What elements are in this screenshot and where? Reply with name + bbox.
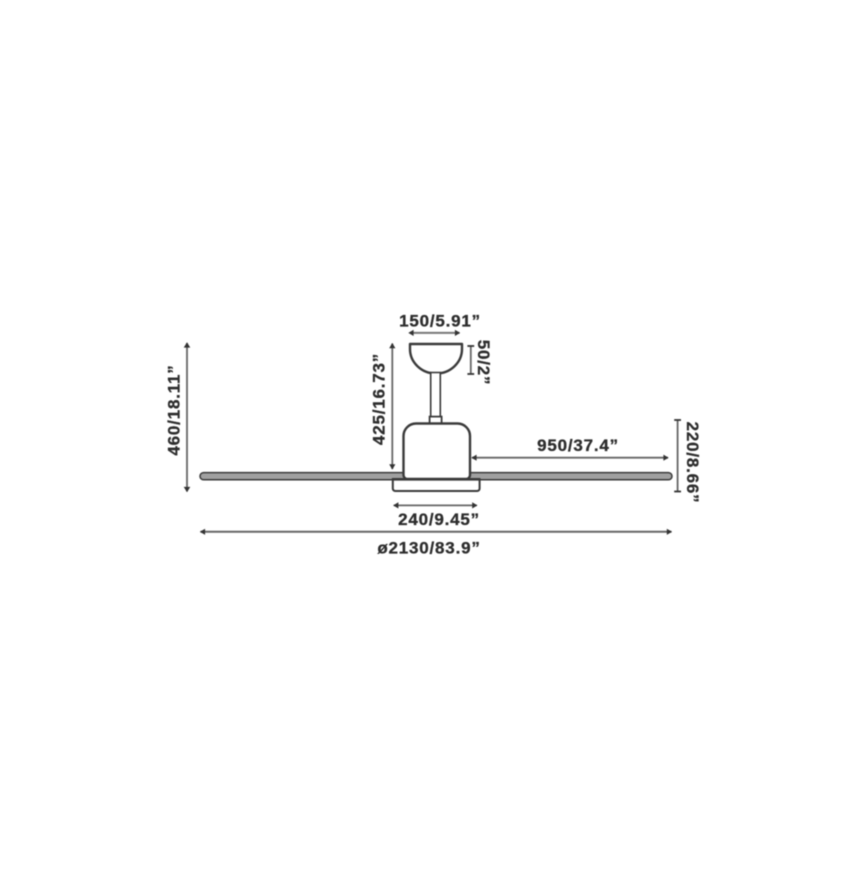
- svg-text:425/16.73”: 425/16.73”: [370, 353, 389, 445]
- svg-text:220/8.66”: 220/8.66”: [683, 422, 702, 504]
- svg-text:240/9.45”: 240/9.45”: [398, 510, 480, 529]
- svg-text:150/5.91”: 150/5.91”: [399, 312, 481, 331]
- svg-text:950/37.4”: 950/37.4”: [537, 436, 619, 455]
- svg-text:ø2130/83.9”: ø2130/83.9”: [377, 539, 480, 558]
- svg-text:460/18.11”: 460/18.11”: [165, 364, 184, 455]
- svg-text:50/2”: 50/2”: [474, 340, 493, 386]
